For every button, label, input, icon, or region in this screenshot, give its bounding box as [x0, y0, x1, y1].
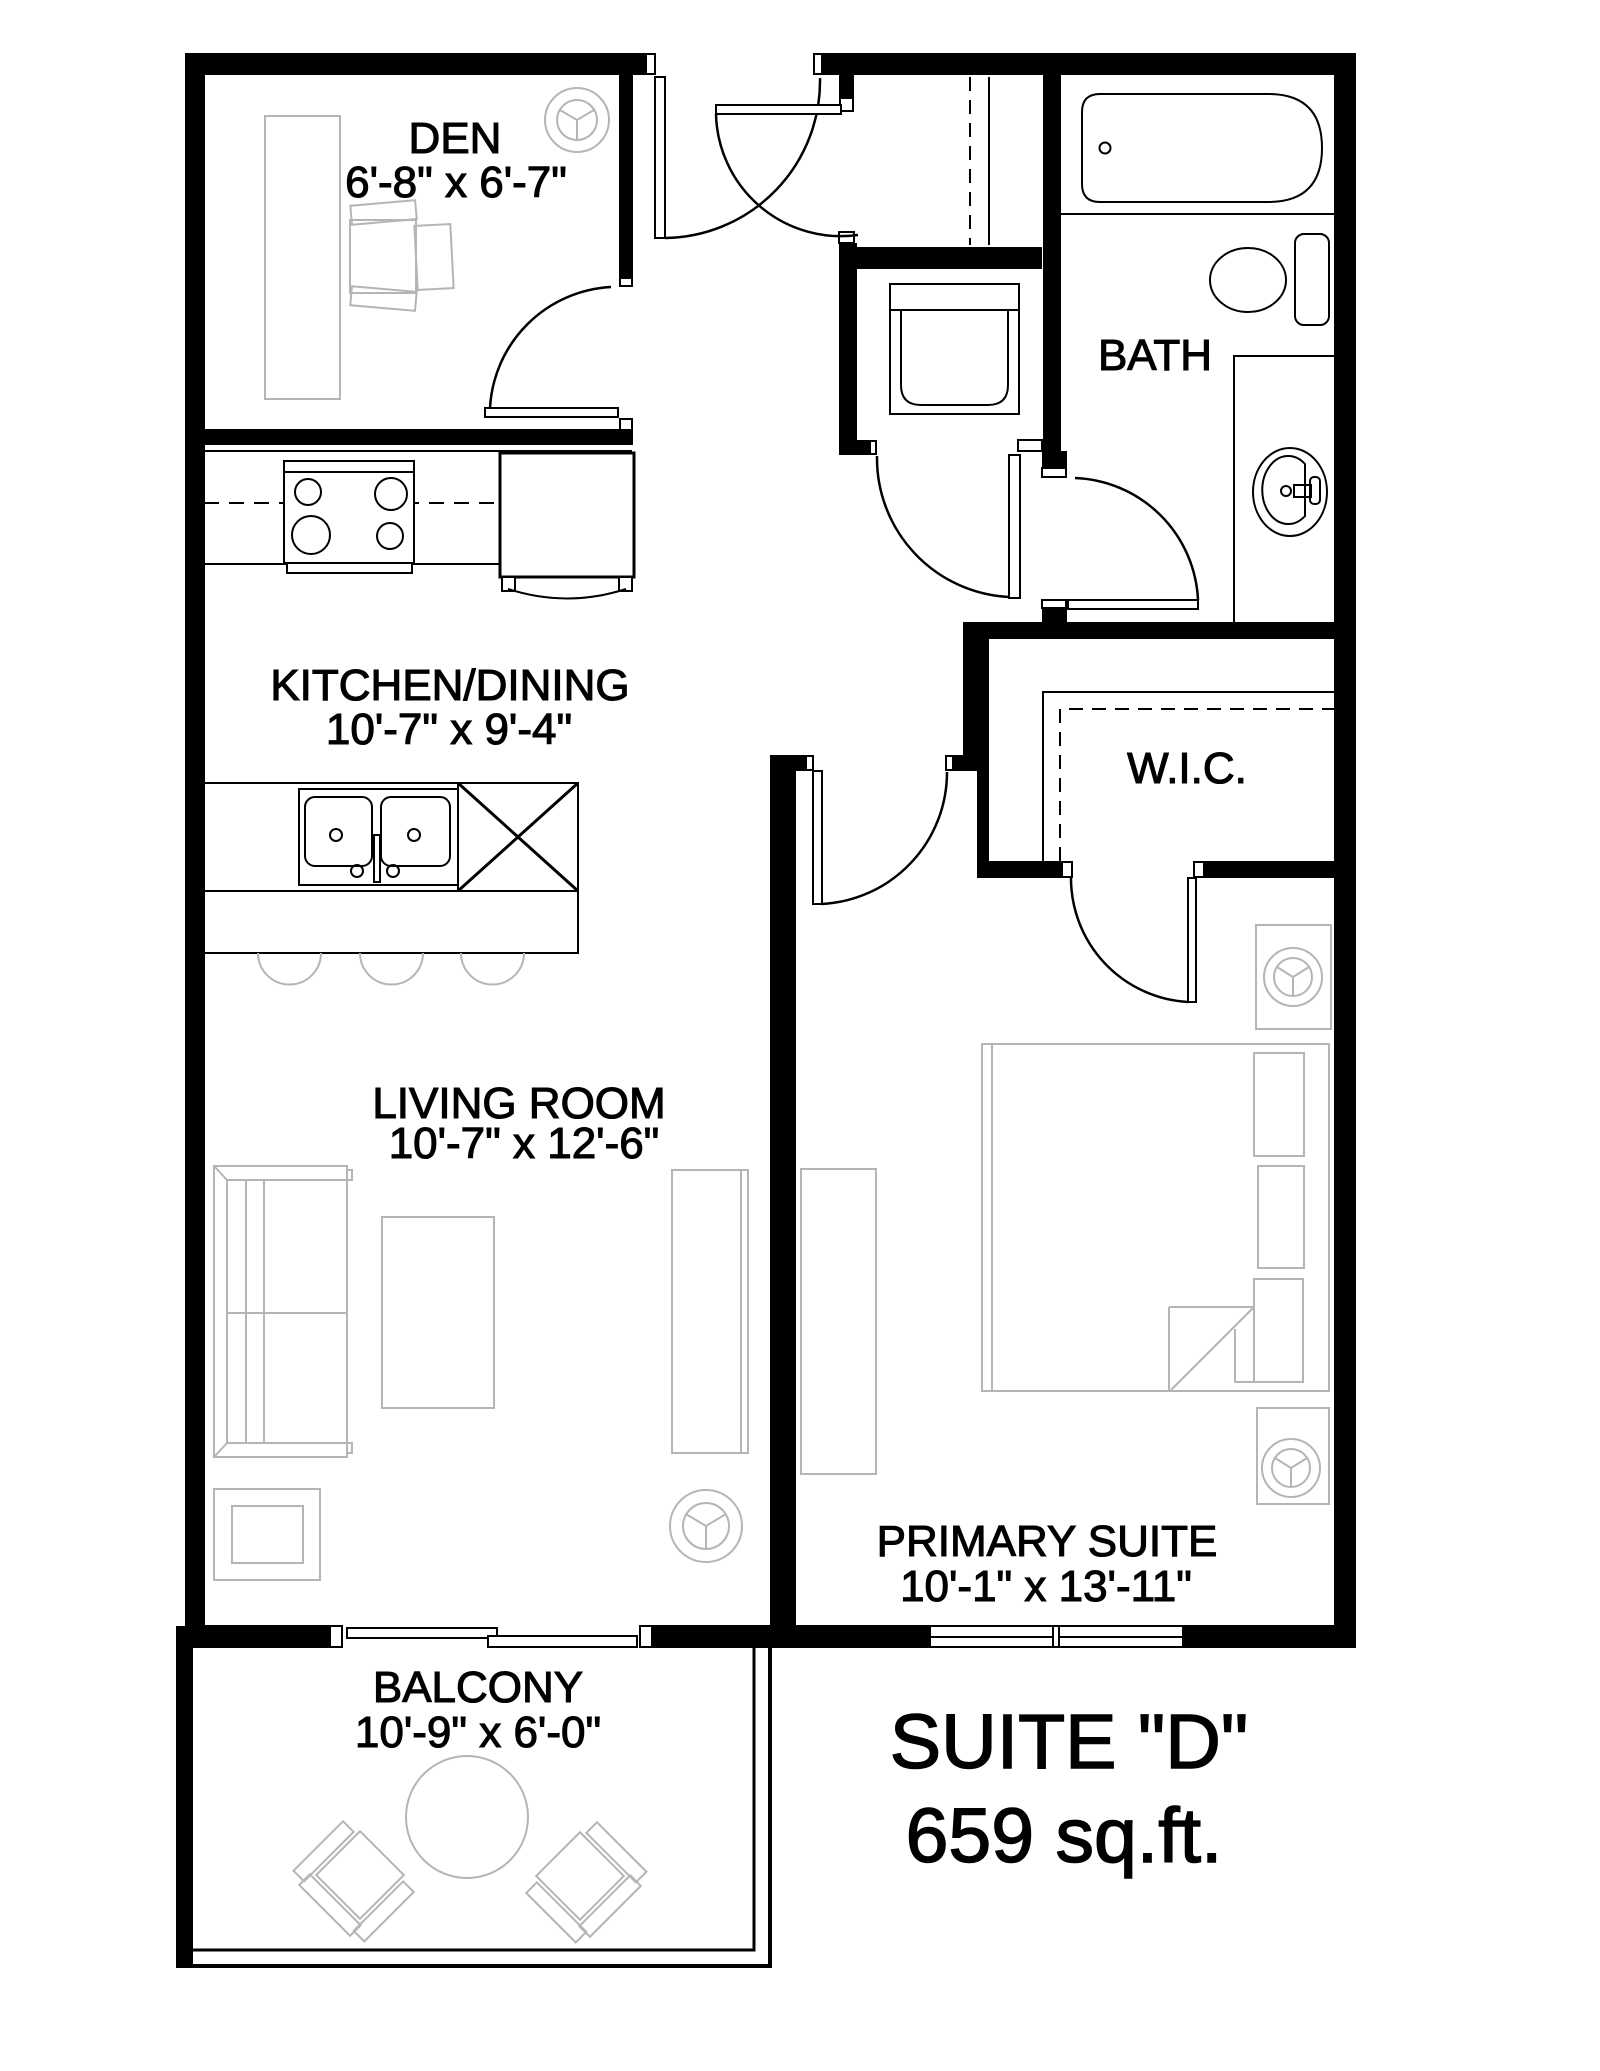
svg-text:BATH: BATH: [1098, 331, 1212, 380]
svg-text:DEN: DEN: [409, 114, 502, 163]
svg-text:SUITE "D": SUITE "D": [890, 1699, 1248, 1785]
svg-text:10'-9" x 6'-0": 10'-9" x 6'-0": [355, 1708, 601, 1757]
svg-text:PRIMARY SUITE: PRIMARY SUITE: [877, 1517, 1218, 1566]
svg-text:W.I.C.: W.I.C.: [1127, 744, 1247, 793]
svg-text:10'-1" x 13'-11": 10'-1" x 13'-11": [900, 1562, 1192, 1611]
svg-text:BALCONY: BALCONY: [373, 1663, 583, 1712]
svg-text:6'-8" x 6'-7": 6'-8" x 6'-7": [345, 158, 567, 207]
svg-text:KITCHEN/DINING: KITCHEN/DINING: [270, 661, 629, 710]
svg-text:10'-7" x 12'-6": 10'-7" x 12'-6": [389, 1119, 660, 1168]
svg-text:10'-7" x 9'-4": 10'-7" x 9'-4": [326, 705, 572, 754]
svg-text:659 sq.ft.: 659 sq.ft.: [906, 1793, 1223, 1879]
